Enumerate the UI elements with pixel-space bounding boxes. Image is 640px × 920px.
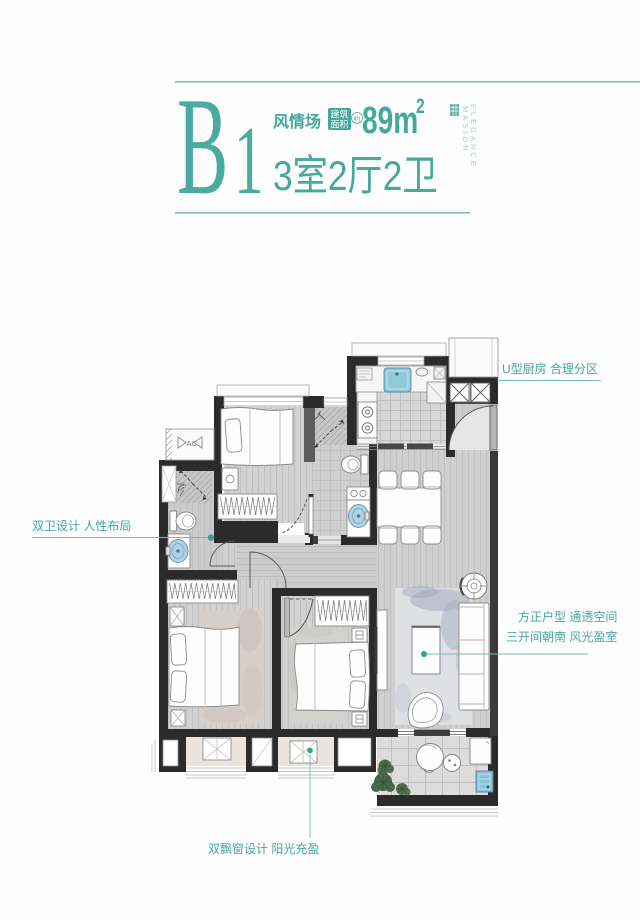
svg-text:建筑: 建筑: [331, 109, 349, 120]
svg-text:2: 2: [416, 94, 425, 118]
svg-text:双卫设计 人性布局: 双卫设计 人性布局: [32, 519, 131, 533]
svg-text:89m: 89m: [362, 100, 418, 142]
svg-text:方正户型 通透空间: 方正户型 通透空间: [518, 609, 617, 624]
svg-text:U型厨房 合理分区: U型厨房 合理分区: [502, 361, 598, 376]
svg-text:3室2厅2卫: 3室2厅2卫: [273, 153, 438, 200]
svg-text:1: 1: [234, 107, 264, 214]
svg-text:三开间朝南 风光盈室: 三开间朝南 风光盈室: [506, 629, 617, 644]
svg-text:B: B: [177, 69, 228, 224]
svg-text:约: 约: [354, 114, 361, 123]
svg-text:风情场: 风情场: [273, 112, 321, 131]
svg-text:AC: AC: [187, 439, 198, 448]
svg-text:双飘窗设计 阳光充盈: 双飘窗设计 阳光充盈: [208, 841, 319, 856]
svg-text:MASION: MASION: [461, 106, 470, 154]
svg-text:面积: 面积: [331, 119, 349, 130]
